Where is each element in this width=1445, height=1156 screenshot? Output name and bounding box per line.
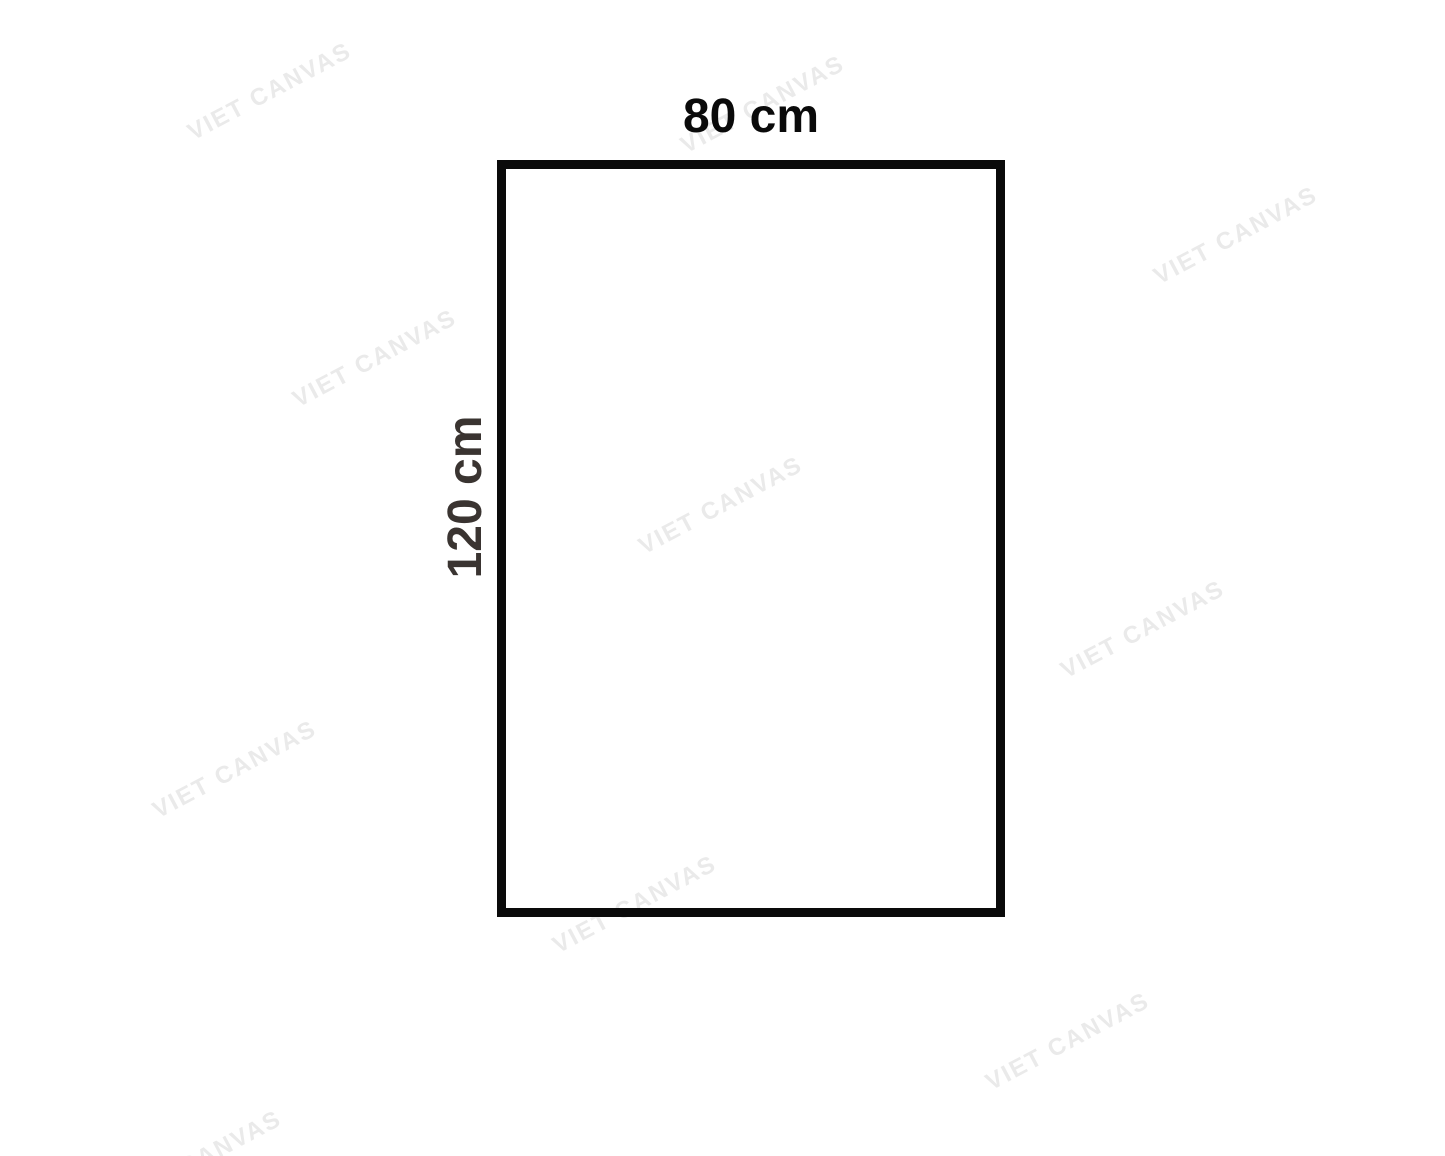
watermark-text: VIET CANVAS <box>981 987 1154 1097</box>
height-dimension-label: 120 cm <box>441 416 491 579</box>
width-dimension-label: 80 cm <box>497 92 1005 142</box>
watermark-text: VIET CANVAS <box>183 37 356 147</box>
watermark-text: VIET CANVAS <box>288 304 461 414</box>
watermark-text: VIET CANVAS <box>1149 181 1322 291</box>
watermark-text: VIET CANVAS <box>148 715 321 825</box>
watermark-text: VIET CANVAS <box>113 1105 286 1156</box>
product-dimension-diagram: VIET CANVAS VIET CANVAS VIET CANVAS VIET… <box>0 0 1445 1156</box>
canvas-outline-rectangle <box>497 160 1005 917</box>
watermark-text: VIET CANVAS <box>1056 575 1229 685</box>
